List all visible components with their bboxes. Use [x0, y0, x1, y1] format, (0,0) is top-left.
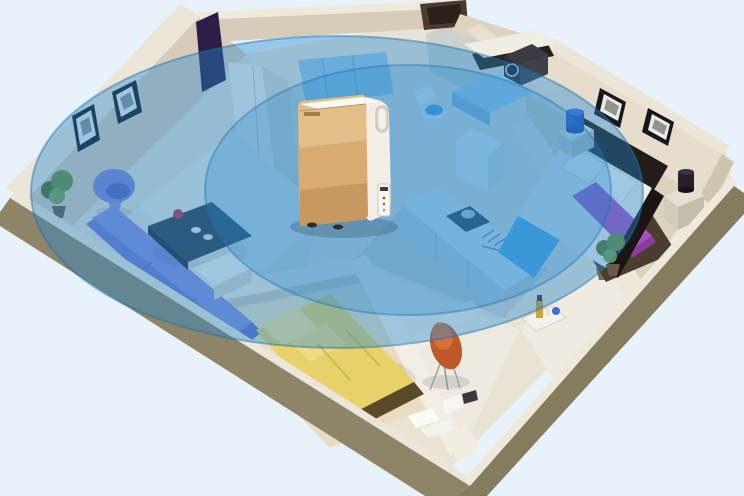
- device-foot: [307, 223, 317, 228]
- panel-button: [383, 209, 386, 212]
- brand-logo: [304, 112, 320, 116]
- floorplan-canvas: [0, 0, 744, 496]
- dark-lamp-top: [678, 169, 694, 175]
- blue-ornament: [552, 307, 560, 315]
- coverage-inner-ring: [205, 65, 611, 315]
- floorplan-scene: [0, 0, 744, 496]
- dark-lamp-base: [678, 187, 694, 193]
- device-foot: [333, 225, 343, 230]
- device-front-shade: [299, 183, 368, 226]
- panel-button: [383, 197, 386, 200]
- panel-indicator: [380, 187, 388, 191]
- panel-button: [383, 203, 386, 206]
- handle-slot-inner: [379, 109, 386, 129]
